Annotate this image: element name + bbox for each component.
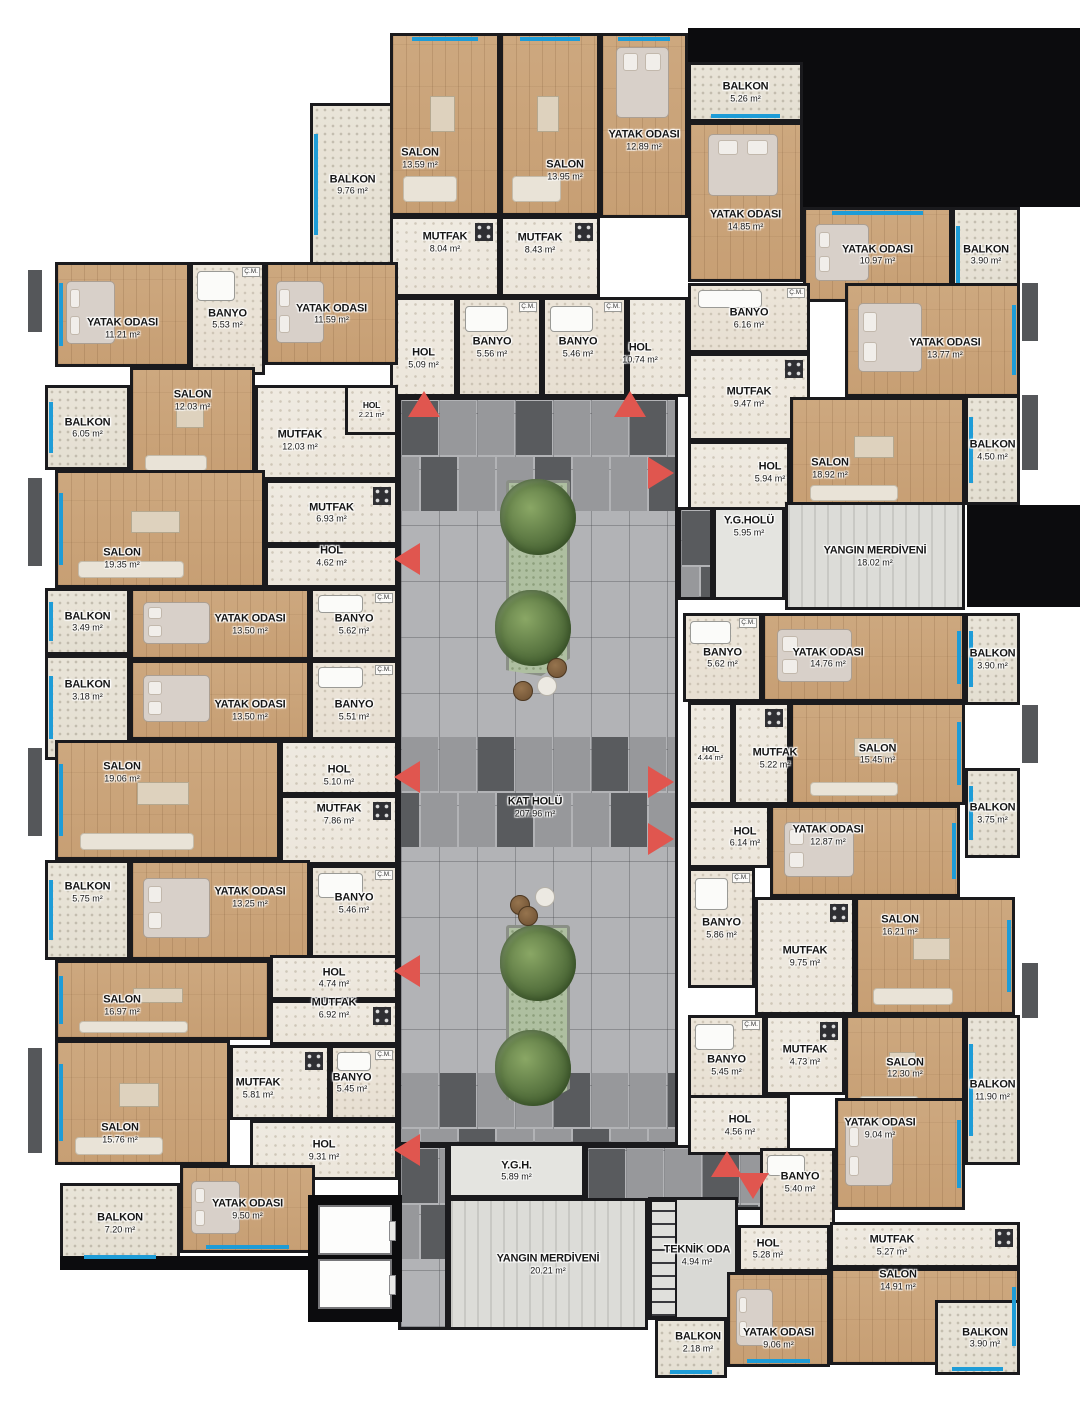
washing-machine-label: Ç.M. — [732, 873, 750, 883]
pillow — [148, 625, 162, 637]
room-hol — [688, 441, 790, 510]
gray-filler-block — [1022, 963, 1038, 1018]
window-strip — [84, 1255, 157, 1259]
window-strip — [314, 134, 318, 234]
corridor-tile — [440, 1073, 476, 1127]
room-banyo: Ç.M. — [457, 297, 542, 397]
room-balkon — [965, 1015, 1020, 1165]
room-mutfak — [390, 216, 500, 297]
direction-arrow-up-icon — [408, 391, 440, 417]
corridor-tile — [668, 1073, 678, 1127]
direction-arrow-right-icon — [648, 457, 674, 489]
bed — [276, 281, 324, 343]
pillow — [279, 315, 289, 333]
room-hol — [265, 545, 398, 588]
window-strip — [969, 786, 973, 840]
stove-icon — [575, 223, 593, 241]
pillow — [819, 232, 831, 248]
room-salon — [55, 1040, 230, 1165]
window-strip — [49, 602, 53, 641]
coffee-table — [133, 988, 183, 1003]
pillow — [849, 1156, 859, 1176]
bed — [143, 878, 209, 938]
direction-arrow-left-icon — [394, 761, 420, 793]
corridor-segment — [398, 1145, 448, 1330]
gray-filler-block — [28, 1048, 42, 1153]
corridor-tile — [573, 457, 609, 511]
window-strip — [520, 37, 580, 41]
corridor-tile — [440, 401, 476, 455]
room-yatak-odasi — [55, 262, 190, 367]
washing-machine-label: Ç.M. — [375, 870, 393, 880]
plant-pot — [518, 906, 538, 926]
washing-machine-label: Ç.M. — [242, 267, 260, 277]
room-salon — [130, 367, 255, 480]
room-mutfak — [280, 795, 398, 865]
room-salon — [855, 897, 1015, 1015]
bathtub — [197, 271, 235, 301]
room-yatak-odasi — [762, 613, 965, 702]
stove-icon — [765, 709, 783, 727]
window-strip — [670, 1370, 712, 1374]
direction-arrow-down-icon — [737, 1173, 769, 1199]
direction-arrow-right-icon — [648, 766, 674, 798]
room-banyo: Ç.M. — [310, 588, 398, 660]
room-y.g.holü — [713, 507, 785, 600]
window-strip — [59, 493, 63, 565]
bathtub — [318, 595, 363, 613]
bathtub — [767, 1155, 805, 1176]
corridor-tile — [592, 1073, 628, 1127]
coffee-table — [913, 938, 950, 960]
coffee-table — [854, 436, 895, 457]
corridor-tile — [611, 793, 647, 847]
room-banyo: Ç.M. — [542, 297, 627, 397]
window-strip — [957, 631, 961, 684]
room-yatak-odasi — [688, 122, 803, 282]
gray-filler-block — [28, 748, 42, 836]
window-strip — [711, 114, 781, 118]
window-strip — [969, 631, 973, 686]
plant-pot — [537, 676, 557, 696]
corridor-tile — [627, 1149, 663, 1203]
pillow — [849, 1127, 859, 1147]
bathtub — [695, 878, 729, 910]
window-strip — [206, 1245, 289, 1249]
bathtub — [550, 306, 593, 332]
pillow — [148, 607, 162, 619]
corridor-tile — [649, 1129, 678, 1145]
bathtub — [690, 621, 730, 644]
window-strip — [1012, 1287, 1016, 1345]
pillow — [718, 140, 738, 155]
stove-icon — [830, 904, 848, 922]
bathtub — [695, 1024, 734, 1050]
window-strip — [59, 976, 63, 1023]
washing-machine-label: Ç.M. — [375, 593, 393, 603]
corridor-tile — [421, 793, 457, 847]
window-strip — [957, 1120, 961, 1188]
corridor-tile — [398, 457, 419, 511]
stove-icon — [305, 1052, 323, 1070]
sofa — [145, 455, 207, 471]
gray-filler-block — [28, 478, 42, 566]
room-mutfak — [755, 897, 855, 1015]
sofa — [810, 485, 898, 501]
room-balkon — [935, 1300, 1020, 1375]
room-mutfak — [265, 480, 398, 545]
sofa — [79, 1021, 188, 1032]
black-filler-block — [967, 505, 1080, 607]
room-balkon — [45, 385, 130, 470]
pillow — [195, 1188, 205, 1203]
room-mutfak — [230, 1045, 330, 1120]
room-salon — [790, 397, 965, 510]
room-balkon — [45, 588, 130, 655]
room-yatak-odasi — [600, 33, 688, 218]
bathtub — [465, 306, 508, 332]
bathtub — [318, 873, 363, 898]
bed — [784, 822, 854, 877]
corridor-tile — [678, 567, 699, 600]
pillow — [148, 886, 162, 903]
window-strip — [49, 402, 53, 453]
pillow — [782, 659, 798, 674]
room-salon — [55, 740, 280, 860]
corridor-tile — [440, 1149, 448, 1203]
corridor-tile — [459, 457, 495, 511]
pillow — [623, 53, 638, 71]
gray-filler-block — [28, 270, 42, 332]
room-salon — [55, 960, 270, 1040]
corridor-tile — [554, 401, 590, 455]
elevator-cab — [318, 1205, 392, 1255]
tree-icon — [495, 1030, 571, 1106]
direction-arrow-left-icon — [394, 1134, 420, 1166]
pillow — [279, 289, 289, 307]
corridor-tile — [402, 1073, 438, 1127]
window-strip — [969, 417, 973, 484]
pillow — [819, 256, 831, 272]
window-strip — [969, 1044, 973, 1136]
room-mutfak — [733, 702, 790, 805]
room-yatak-odasi — [130, 588, 310, 660]
corridor-tile — [682, 511, 713, 565]
corridor-tile — [554, 737, 590, 791]
room-yangin-merdi-veni- — [448, 1198, 648, 1330]
direction-arrow-left-icon — [394, 543, 420, 575]
bed — [858, 303, 922, 372]
window-strip — [952, 1367, 1003, 1371]
room-hol — [280, 740, 398, 795]
corridor-tile — [478, 401, 514, 455]
pillow — [70, 289, 80, 307]
corridor-tile — [497, 793, 533, 847]
sofa — [810, 782, 898, 797]
pillow — [739, 1297, 747, 1313]
corridor-tile — [535, 793, 571, 847]
pillow — [747, 140, 767, 155]
corridor-tile — [421, 1205, 448, 1259]
bed — [736, 1289, 773, 1346]
window-strip — [59, 764, 63, 837]
tree-icon — [495, 590, 571, 666]
stove-icon — [820, 1022, 838, 1040]
room-banyo: Ç.M. — [190, 262, 265, 375]
floor-plan-canvas: Ç.M.Ç.M.Ç.M.Ç.M.Ç.M.Ç.M.Ç.M.Ç.M.Ç.M.Ç.M.… — [0, 0, 1080, 1424]
room-yatak-odasi — [727, 1272, 830, 1367]
room-balkon — [965, 395, 1020, 505]
service-ladder — [650, 1200, 677, 1318]
pillow — [195, 1210, 205, 1225]
pillow — [863, 312, 877, 332]
room-balkon — [310, 103, 395, 266]
corridor-tile — [459, 793, 495, 847]
window-strip — [59, 283, 63, 346]
stove-icon — [475, 223, 493, 241]
corridor-tile — [421, 457, 457, 511]
window-strip — [957, 722, 961, 784]
stove-icon — [373, 1007, 391, 1025]
coffee-table — [430, 96, 455, 131]
gray-filler-block — [1022, 395, 1038, 470]
window-strip — [618, 37, 670, 41]
pillow — [789, 829, 804, 845]
window-strip — [952, 823, 956, 878]
bed — [815, 224, 869, 281]
room-balkon — [965, 613, 1020, 705]
stove-icon — [995, 1229, 1013, 1247]
pillow — [863, 342, 877, 362]
pillow — [148, 701, 162, 715]
corridor-tile — [398, 793, 419, 847]
room-hol — [390, 297, 457, 397]
corridor-tile — [668, 401, 678, 455]
plant-pot — [547, 658, 567, 678]
coffee-table — [537, 96, 560, 131]
room-balkon — [60, 1183, 180, 1263]
bed — [66, 281, 115, 344]
bed — [845, 1118, 892, 1186]
room-balkon — [45, 860, 130, 960]
tree-icon — [500, 925, 576, 1001]
corridor-tile — [701, 567, 713, 600]
washing-machine-label: Ç.M. — [604, 302, 622, 312]
black-filler-block — [795, 28, 1080, 207]
window-strip — [956, 226, 960, 283]
bed — [191, 1181, 240, 1233]
room-hol — [738, 1225, 830, 1272]
gray-filler-block — [1022, 283, 1038, 341]
corridor-tile — [611, 457, 647, 511]
room-yatak-odasi — [835, 1098, 965, 1210]
room-mutfak — [270, 1000, 398, 1045]
coffee-table — [131, 511, 180, 533]
coffee-table — [137, 782, 190, 805]
direction-arrow-up-icon — [614, 391, 646, 417]
elevator-cab — [318, 1259, 392, 1309]
window-strip — [49, 880, 53, 940]
coffee-table — [889, 1052, 916, 1072]
room-yatak-odasi — [845, 283, 1020, 397]
room-banyo: Ç.M. — [310, 660, 398, 740]
room-banyo: Ç.M. — [330, 1045, 398, 1120]
corridor-segment — [678, 507, 713, 600]
gray-filler-block — [1022, 705, 1038, 763]
pillow — [789, 852, 804, 868]
sofa — [512, 176, 561, 203]
window-strip — [49, 676, 53, 739]
bed — [143, 602, 209, 644]
room-banyo: Ç.M. — [688, 868, 755, 988]
corridor-tile — [592, 737, 628, 791]
room-mutfak — [765, 1015, 845, 1095]
room-yatak-odasi — [265, 262, 398, 365]
window-strip — [1007, 920, 1011, 992]
room-banyo: Ç.M. — [683, 613, 762, 702]
washing-machine-label: Ç.M. — [519, 302, 537, 312]
room-yatak-odasi — [130, 860, 310, 960]
window-strip — [412, 37, 479, 41]
room-hol — [688, 702, 733, 805]
corridor-tile — [665, 1149, 701, 1203]
room-yangin-merdi-veni- — [785, 502, 965, 610]
bathtub — [318, 667, 363, 688]
tree-icon — [500, 479, 576, 555]
room-yatak-odasi — [130, 660, 310, 740]
direction-arrow-right-icon — [648, 823, 674, 855]
room-mutfak — [830, 1222, 1020, 1268]
room-hol — [627, 297, 688, 397]
room-balkon — [688, 62, 803, 122]
corridor-tile — [516, 737, 552, 791]
washing-machine-label: Ç.M. — [787, 288, 805, 298]
corridor-tile — [611, 1129, 647, 1145]
bed — [143, 675, 209, 722]
plant-pot — [513, 681, 533, 701]
room-salon — [790, 702, 965, 805]
stove-icon — [785, 360, 803, 378]
sofa — [75, 1137, 163, 1155]
bed — [708, 134, 778, 196]
room-hol — [270, 955, 398, 1000]
room-salon — [55, 470, 265, 588]
room-banyo — [760, 1148, 835, 1228]
sofa — [873, 988, 953, 1005]
room-balkon — [655, 1318, 727, 1378]
corridor-tile — [440, 737, 476, 791]
room-mutfak — [500, 216, 600, 297]
window-strip — [59, 1064, 63, 1140]
room-y.g.h. — [448, 1143, 585, 1198]
room-salon — [500, 33, 600, 216]
corridor-tile — [516, 401, 552, 455]
pillow — [70, 316, 80, 334]
washing-machine-label: Ç.M. — [375, 1050, 393, 1060]
room-banyo: Ç.M. — [688, 283, 810, 353]
sofa — [78, 561, 184, 578]
pillow — [782, 636, 798, 651]
window-strip — [747, 1359, 809, 1363]
room-yatak-odasi — [770, 805, 960, 897]
bed — [777, 629, 852, 682]
window-strip — [832, 211, 924, 215]
pillow — [148, 912, 162, 929]
room-banyo: Ç.M. — [310, 865, 398, 960]
room-hol — [688, 1095, 790, 1155]
room-balkon — [965, 768, 1020, 858]
pillow — [148, 681, 162, 695]
washing-machine-label: Ç.M. — [739, 618, 757, 628]
room-salon — [390, 33, 500, 216]
bathtub — [337, 1052, 371, 1071]
room-hol — [345, 385, 398, 435]
corridor-tile — [478, 737, 514, 791]
sofa — [80, 833, 194, 850]
direction-arrow-left-icon — [394, 955, 420, 987]
pillow — [739, 1321, 747, 1337]
corridor-tile — [573, 793, 609, 847]
coffee-table — [854, 738, 895, 757]
corridor-tile — [589, 1149, 625, 1203]
pillow — [645, 53, 660, 71]
window-strip — [1012, 305, 1016, 374]
room-hol — [688, 805, 770, 868]
stove-icon — [373, 487, 391, 505]
plant-pot — [535, 887, 555, 907]
sofa — [403, 176, 457, 203]
coffee-table — [176, 406, 205, 427]
corridor-tile — [630, 1073, 666, 1127]
room-yatak-odasi — [180, 1165, 315, 1253]
coffee-table — [119, 1083, 160, 1107]
washing-machine-label: Ç.M. — [742, 1020, 760, 1030]
stove-icon — [373, 802, 391, 820]
bed — [616, 47, 668, 119]
washing-machine-label: Ç.M. — [375, 665, 393, 675]
bathtub — [698, 290, 762, 308]
